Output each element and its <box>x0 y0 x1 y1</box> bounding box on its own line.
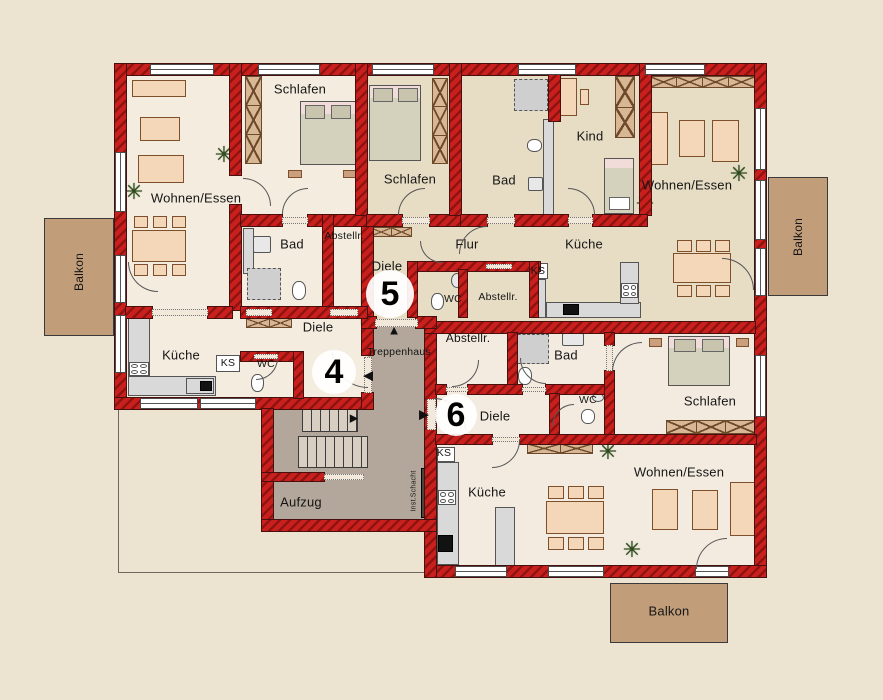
window <box>455 566 507 577</box>
room-label-wohnen-essen-6: Wohnen/Essen <box>634 465 724 480</box>
wall <box>436 385 446 394</box>
wall <box>367 215 402 226</box>
room-label-kueche-6: Küche <box>468 485 506 500</box>
kitchen-island <box>495 507 515 566</box>
wall <box>208 307 232 318</box>
closet <box>615 76 635 138</box>
door-threshold <box>402 217 430 224</box>
chair <box>172 216 186 228</box>
bath-install-wall <box>543 119 554 216</box>
wall <box>416 317 436 328</box>
balcony-door-window <box>115 255 126 303</box>
window <box>115 315 126 373</box>
chair <box>568 486 584 499</box>
plant-icon: ✳ <box>125 181 143 203</box>
label-balkon-left: Balkon <box>72 253 86 291</box>
nightstand <box>343 170 357 178</box>
bed <box>604 158 634 214</box>
closet <box>246 318 292 328</box>
desk <box>557 78 577 116</box>
closet <box>245 76 262 164</box>
wall <box>605 371 614 440</box>
closet <box>650 76 755 88</box>
nightstand <box>288 170 302 178</box>
wall <box>262 409 273 531</box>
entrance-arrow-up: ▲ <box>388 324 401 337</box>
room-label-abstellraum-5: Abstellr. <box>478 291 517 303</box>
window <box>645 64 705 75</box>
wall <box>461 215 487 226</box>
kitchen-counter <box>546 302 641 318</box>
window <box>755 180 766 240</box>
room-label-schlafen-5: Schlafen <box>384 172 436 187</box>
sofa <box>132 80 186 97</box>
door-threshold <box>330 309 358 316</box>
wall <box>356 64 367 215</box>
window <box>258 64 320 75</box>
door-threshold <box>246 309 272 316</box>
room-label-bad-4: Bad <box>280 237 304 252</box>
chair <box>172 264 186 276</box>
room-label-wc-6: WC <box>579 394 597 406</box>
label-treppenhaus: Treppenhaus <box>367 346 431 358</box>
sink <box>253 236 271 253</box>
stairs-direction-arrow: ▶ <box>350 414 358 425</box>
room-label-diele-6: Diele <box>480 409 511 424</box>
wall <box>520 435 756 444</box>
room-label-abstellraum-4: Abstellr. <box>324 230 363 242</box>
wall <box>362 393 373 409</box>
kitchen-sink <box>563 304 579 315</box>
room-label-schlafen-6: Schlafen <box>684 394 736 409</box>
bed <box>300 101 356 165</box>
window <box>115 152 126 212</box>
wall <box>605 333 614 345</box>
wall <box>262 473 324 481</box>
apartment-number-5: 5 <box>366 270 414 318</box>
bed <box>369 85 421 161</box>
sofa <box>712 120 739 162</box>
chair <box>153 216 167 228</box>
wall <box>546 385 610 394</box>
door-threshold <box>487 217 515 224</box>
room-label-wc-4: WC <box>257 358 275 370</box>
window <box>140 398 198 409</box>
room-label-kueche-4: Küche <box>162 348 200 363</box>
apartment-number-6: 6 <box>435 394 477 436</box>
nightstand <box>649 338 662 347</box>
toilet <box>431 293 444 310</box>
chair <box>696 285 711 297</box>
wall <box>468 385 522 394</box>
room-label-bad-5: Bad <box>492 173 516 188</box>
room-label-ks-6: KS <box>437 447 451 459</box>
entrance-arrow-left: ◀ <box>363 369 373 382</box>
stairs-lower-flight <box>298 436 368 468</box>
chair <box>677 285 692 297</box>
label-aufzug: Aufzug <box>280 495 322 510</box>
wall <box>294 352 303 398</box>
wall <box>450 64 461 215</box>
chair <box>580 89 589 105</box>
chair <box>588 486 604 499</box>
wall <box>230 64 241 175</box>
stove <box>621 283 638 298</box>
door-threshold <box>324 474 364 480</box>
door-threshold <box>282 217 308 224</box>
chair <box>568 537 584 550</box>
window <box>755 355 766 417</box>
toilet <box>581 409 595 424</box>
chair <box>588 537 604 550</box>
oven <box>438 535 453 552</box>
door-threshold <box>568 217 593 224</box>
lower-storey-outline <box>118 409 119 573</box>
room-label-schlafen-4: Schlafen <box>274 82 326 97</box>
chair <box>715 240 730 252</box>
toilet <box>292 281 306 300</box>
room-label-kueche-5: Küche <box>565 237 603 252</box>
chair <box>548 537 564 550</box>
room-label-ks-5: KS <box>531 265 545 277</box>
wall <box>593 215 647 226</box>
wall <box>408 262 540 271</box>
closet <box>527 443 593 454</box>
window <box>548 566 604 577</box>
room-label-wc-5: WC <box>444 293 462 305</box>
door-threshold <box>486 264 512 269</box>
shower <box>247 268 281 300</box>
wall <box>425 322 436 577</box>
sofa <box>138 155 184 183</box>
plant-icon: ✳ <box>730 163 748 185</box>
closet <box>432 78 448 164</box>
stove <box>129 362 149 376</box>
wall <box>362 317 376 328</box>
nightstand <box>736 338 749 347</box>
room-label-bad-6: Bad <box>554 348 578 363</box>
closet <box>370 227 412 237</box>
sink <box>562 333 584 346</box>
chair <box>548 486 564 499</box>
wall <box>436 435 492 444</box>
room-label-abstellraum-6: Abstellr. <box>446 331 491 345</box>
wall <box>262 520 436 531</box>
dining-table <box>546 501 604 534</box>
door-threshold <box>152 309 208 316</box>
stove <box>438 490 456 505</box>
door-threshold <box>522 387 546 392</box>
chair <box>696 240 711 252</box>
plant-icon: ✳ <box>599 441 617 463</box>
armchair <box>692 490 718 530</box>
closet <box>666 420 756 434</box>
sofa <box>730 482 756 536</box>
shower <box>514 79 548 111</box>
window <box>200 398 256 409</box>
wall <box>241 215 282 226</box>
window <box>372 64 434 75</box>
plant-icon: ✳ <box>623 539 641 561</box>
balcony-door-window <box>755 248 766 296</box>
chair <box>134 216 148 228</box>
wall <box>430 215 461 226</box>
toilet <box>527 139 542 152</box>
wall <box>308 215 367 226</box>
coffee-table <box>140 117 180 141</box>
bed <box>668 336 730 386</box>
room-label-diele-4: Diele <box>303 320 334 335</box>
window <box>518 64 576 75</box>
chair <box>677 240 692 252</box>
wall <box>126 307 152 318</box>
room-label-kind-5: Kind <box>577 129 604 144</box>
armchair <box>679 120 705 157</box>
apartment-number-4: 4 <box>312 350 356 394</box>
label-inst-schacht: Inst.Schacht <box>411 471 418 512</box>
dining-table <box>132 230 186 262</box>
label-balkon-right: Balkon <box>791 218 805 256</box>
wall <box>508 333 517 390</box>
wall <box>515 215 568 226</box>
entrance-arrow-right: ▶ <box>419 408 429 421</box>
window <box>755 108 766 170</box>
room-label-flur-5: Flur <box>455 237 478 252</box>
window <box>150 64 214 75</box>
sofa <box>652 489 678 530</box>
oven <box>200 381 212 391</box>
floor-plan: ✳ ✳ ✳ ✳ <box>0 0 883 700</box>
room-label-wohnen-essen-5: Wohnen/Essen <box>642 178 732 193</box>
label-balkon-bottom: Balkon <box>649 604 690 619</box>
wall <box>230 205 241 310</box>
sink <box>528 177 543 191</box>
room-label-ks-4: KS <box>221 357 235 369</box>
door-threshold <box>446 387 468 392</box>
room-label-wohnen-essen-4: Wohnen/Essen <box>151 191 241 206</box>
